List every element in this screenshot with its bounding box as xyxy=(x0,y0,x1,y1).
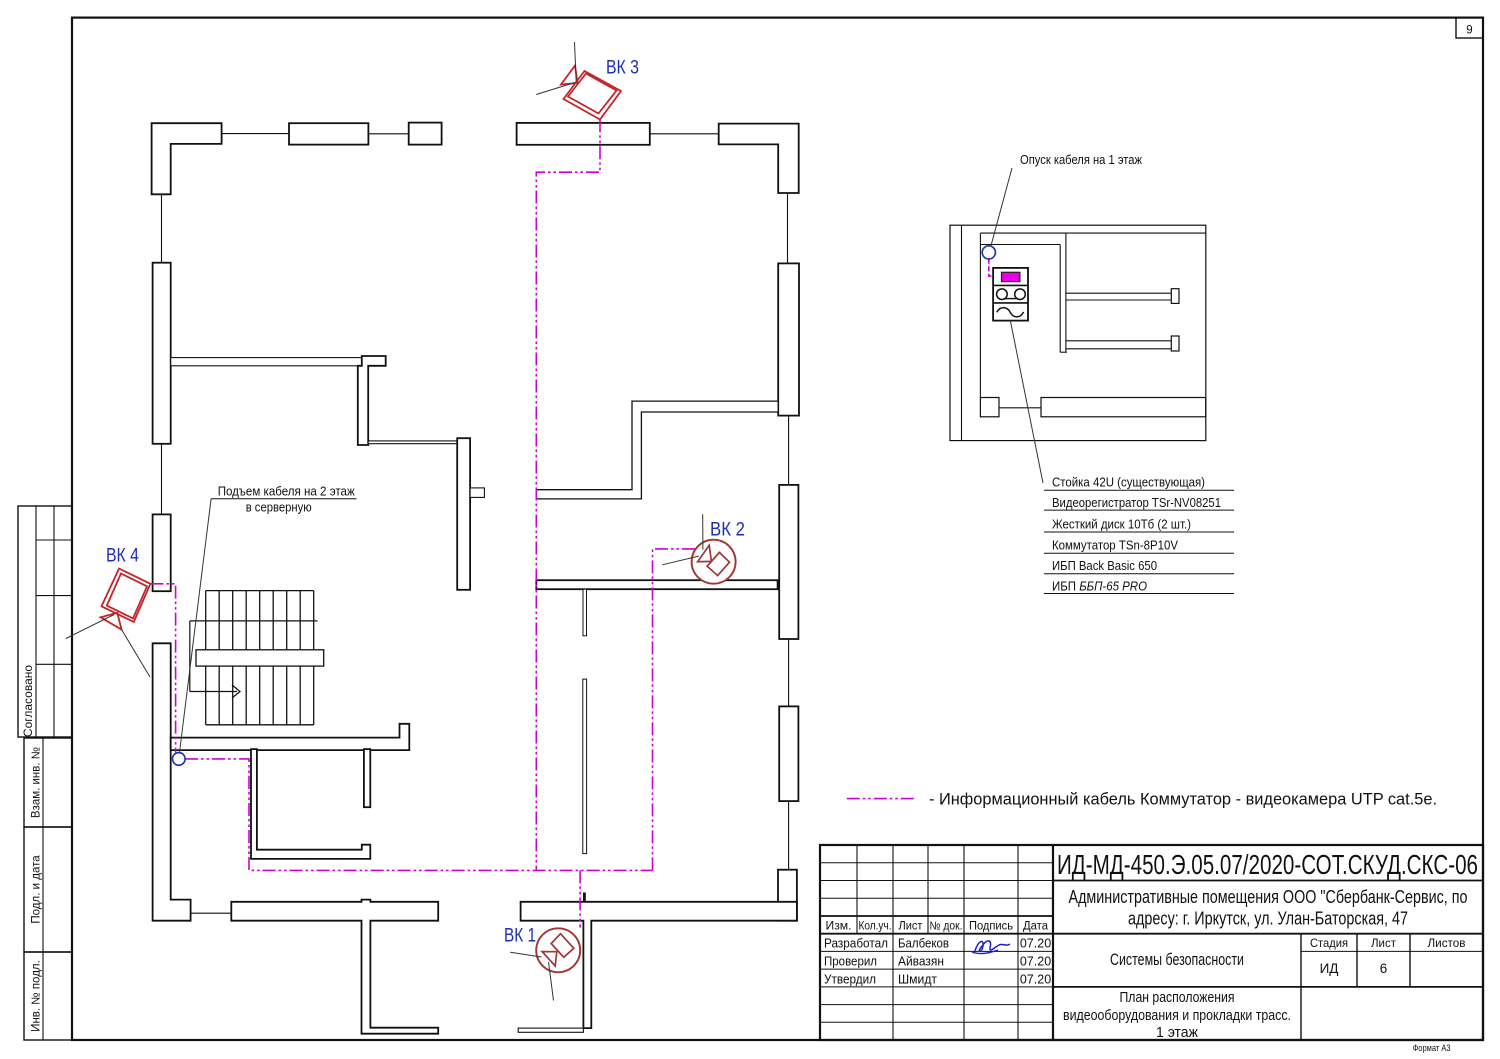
svg-text:План расположения: План расположения xyxy=(1120,989,1235,1006)
svg-text:Системы безопасности: Системы безопасности xyxy=(1110,950,1244,969)
svg-text:ИБП ББП-65 PRO: ИБП ББП-65 PRO xyxy=(1052,580,1147,594)
svg-text:Опуск кабеля на 1 этаж: Опуск кабеля на 1 этаж xyxy=(1020,153,1143,167)
svg-text:Айвазян: Айвазян xyxy=(898,955,944,969)
svg-text:07.20: 07.20 xyxy=(1020,955,1051,969)
svg-text:ВК 4: ВК 4 xyxy=(106,546,139,567)
svg-text:6: 6 xyxy=(1380,961,1388,976)
svg-text:07.20: 07.20 xyxy=(1020,937,1051,951)
svg-text:Разработал: Разработал xyxy=(824,937,888,951)
svg-text:ИД-МД-450.Э.05.07/2020-СОТ.СКУ: ИД-МД-450.Э.05.07/2020-СОТ.СКУД.СКС-06 xyxy=(1057,849,1478,880)
svg-text:в серверную: в серверную xyxy=(246,501,312,515)
svg-text:Административные помещения ООО: Административные помещения ООО "Сбербанк… xyxy=(1069,887,1468,907)
svg-text:- Информационный кабель Коммут: - Информационный кабель Коммутатор - вид… xyxy=(929,790,1437,809)
svg-text:Изм.: Изм. xyxy=(826,921,852,933)
svg-text:1 этаж: 1 этаж xyxy=(1156,1024,1198,1041)
svg-text:Подл. и дата: Подл. и дата xyxy=(31,855,43,924)
svg-text:Жесткий диск 10Тб (2 шт.): Жесткий диск 10Тб (2 шт.) xyxy=(1052,518,1191,532)
svg-text:07.20: 07.20 xyxy=(1020,973,1051,987)
svg-text:Листов: Листов xyxy=(1428,936,1466,950)
svg-text:Дата: Дата xyxy=(1023,921,1049,933)
svg-text:№ док.: № док. xyxy=(930,921,963,933)
svg-text:ВК 3: ВК 3 xyxy=(606,58,639,79)
svg-text:адресу: г. Иркутск, ул. Улан-Б: адресу: г. Иркутск, ул. Улан-Баторская, … xyxy=(1128,909,1408,929)
svg-text:Видеорегистратор TSr-NV08251: Видеорегистратор TSr-NV08251 xyxy=(1052,496,1221,510)
svg-text:Инв. № подл.: Инв. № подл. xyxy=(31,960,43,1032)
svg-text:ВК 2: ВК 2 xyxy=(710,520,745,541)
svg-text:Утвердил: Утвердил xyxy=(824,973,876,987)
svg-text:Проверил: Проверил xyxy=(824,955,877,969)
svg-text:Стойка 42U (существующая): Стойка 42U (существующая) xyxy=(1052,476,1205,490)
svg-text:Согласовано: Согласовано xyxy=(21,665,35,737)
svg-text:ВК 1: ВК 1 xyxy=(504,926,536,947)
svg-text:Лист: Лист xyxy=(1371,936,1396,950)
svg-text:ИД: ИД xyxy=(1320,961,1339,976)
svg-text:Подпись: Подпись xyxy=(969,921,1013,933)
svg-text:Стадия: Стадия xyxy=(1310,936,1348,950)
svg-text:Балбеков: Балбеков xyxy=(898,937,949,951)
svg-text:Лист: Лист xyxy=(899,921,924,933)
svg-text:Коммутатор TSn-8P10V: Коммутатор TSn-8P10V xyxy=(1052,539,1179,553)
svg-text:видеооборудования и прокладки: видеооборудования и прокладки трасс. xyxy=(1063,1007,1291,1024)
svg-text:Подъем кабеля на 2 этаж: Подъем кабеля на 2 этаж xyxy=(218,485,356,499)
svg-text:Шмидт: Шмидт xyxy=(898,973,937,987)
svg-text:Формат А3: Формат А3 xyxy=(1413,1043,1451,1054)
svg-text:ИБП Back Basic 650: ИБП Back Basic 650 xyxy=(1052,559,1157,573)
svg-text:Взам. инв. №: Взам. инв. № xyxy=(31,747,43,818)
svg-text:9: 9 xyxy=(1466,25,1472,37)
svg-text:Кол.уч.: Кол.уч. xyxy=(859,921,892,933)
